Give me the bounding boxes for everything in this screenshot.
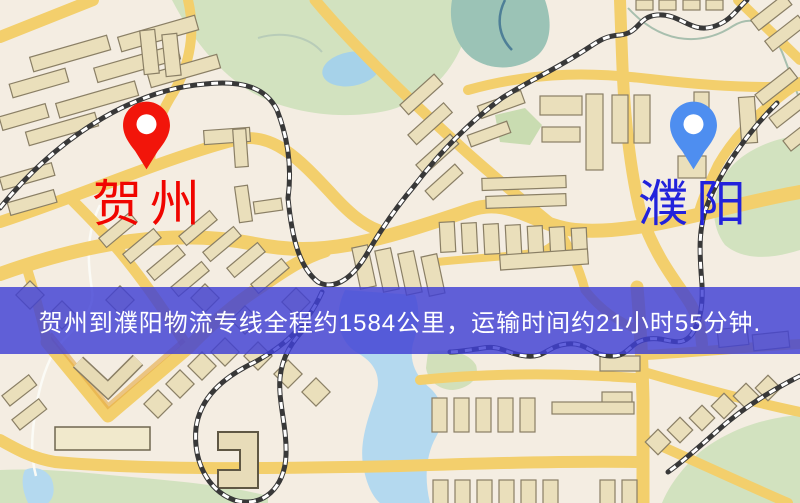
destination-pin-icon — [666, 99, 721, 172]
destination-label: 濮阳 — [638, 178, 754, 231]
origin-label: 贺州 — [92, 178, 208, 231]
origin-pin-icon — [119, 99, 174, 172]
logistics-route-map: 贺州到濮阳物流专线全程约1584公里，运输时间约21小时55分钟. 贺州 濮阳 — [0, 0, 800, 503]
route-info-text: 贺州到濮阳物流专线全程约1584公里，运输时间约21小时55分钟. — [39, 303, 761, 338]
map-background — [0, 0, 800, 503]
route-info-banner: 贺州到濮阳物流专线全程约1584公里，运输时间约21小时55分钟. — [0, 287, 800, 354]
